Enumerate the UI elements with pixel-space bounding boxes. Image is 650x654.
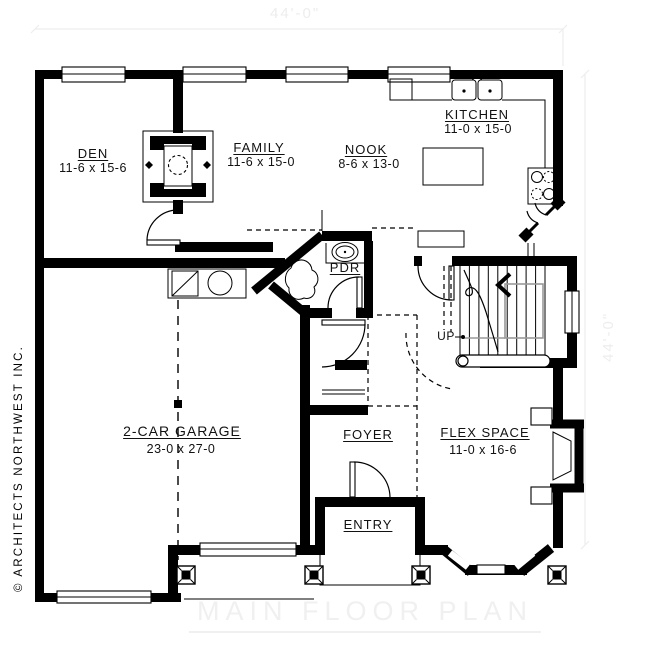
garage-fixtures xyxy=(168,269,246,560)
stairs xyxy=(406,266,550,389)
sheet-title-watermark: MAIN FLOOR PLAN xyxy=(189,596,541,633)
dimension-top-label: 44'-0" xyxy=(270,5,320,22)
room-label-nook: NOOK xyxy=(345,143,387,157)
porch-column xyxy=(412,566,430,584)
room-label-family: FAMILY xyxy=(233,141,284,155)
bay-window xyxy=(443,548,551,574)
room-label-foyer: FOYER xyxy=(343,428,393,442)
handrail xyxy=(505,284,543,338)
dimension-right-label: 44'-0" xyxy=(600,312,617,362)
room-size-kitchen: 11-0 x 15-0 xyxy=(444,123,512,137)
sink-icon xyxy=(332,243,358,262)
room-label-pdr: PDR xyxy=(330,261,360,275)
stairs-up-label: UP xyxy=(437,330,455,343)
stair-direction-arrow xyxy=(498,274,510,296)
room-size-den: 11-6 x 15-6 xyxy=(59,162,127,176)
room-label-entry: ENTRY xyxy=(344,518,393,532)
room-label-den: DEN xyxy=(78,147,108,161)
cooktop-icon xyxy=(528,168,556,204)
room-label-garage: 2-CAR GARAGE xyxy=(123,424,241,439)
water-heater-icon xyxy=(208,271,232,295)
copyright-text: © ARCHITECTS NORTHWEST INC. xyxy=(13,345,25,592)
kitchen-sink-icon xyxy=(452,76,502,100)
porch-column xyxy=(305,566,323,584)
room-size-garage: 23-0 x 27-0 xyxy=(147,443,216,457)
porch-column xyxy=(548,566,566,584)
porch-column xyxy=(177,566,195,584)
room-size-flex: 11-0 x 16-6 xyxy=(449,444,517,458)
room-label-flex: FLEX SPACE xyxy=(440,426,529,440)
floor-plan-drawing xyxy=(0,0,650,654)
porch xyxy=(184,555,420,599)
room-label-kitchen: KITCHEN xyxy=(445,108,509,122)
fireplace-icon xyxy=(143,131,213,202)
entry-porch-edge xyxy=(320,555,420,585)
floor-plan-sheet: DEN 11-6 x 15-6 FAMILY 11-6 x 15-0 NOOK … xyxy=(0,0,650,654)
pantry-cabinet xyxy=(418,231,464,247)
newel-post xyxy=(458,356,468,366)
garage-post xyxy=(174,400,182,408)
flex-niche xyxy=(531,408,584,504)
room-size-family: 11-6 x 15-0 xyxy=(227,156,295,170)
room-size-nook: 8-6 x 13-0 xyxy=(338,158,399,172)
kitchen-island xyxy=(423,148,483,185)
